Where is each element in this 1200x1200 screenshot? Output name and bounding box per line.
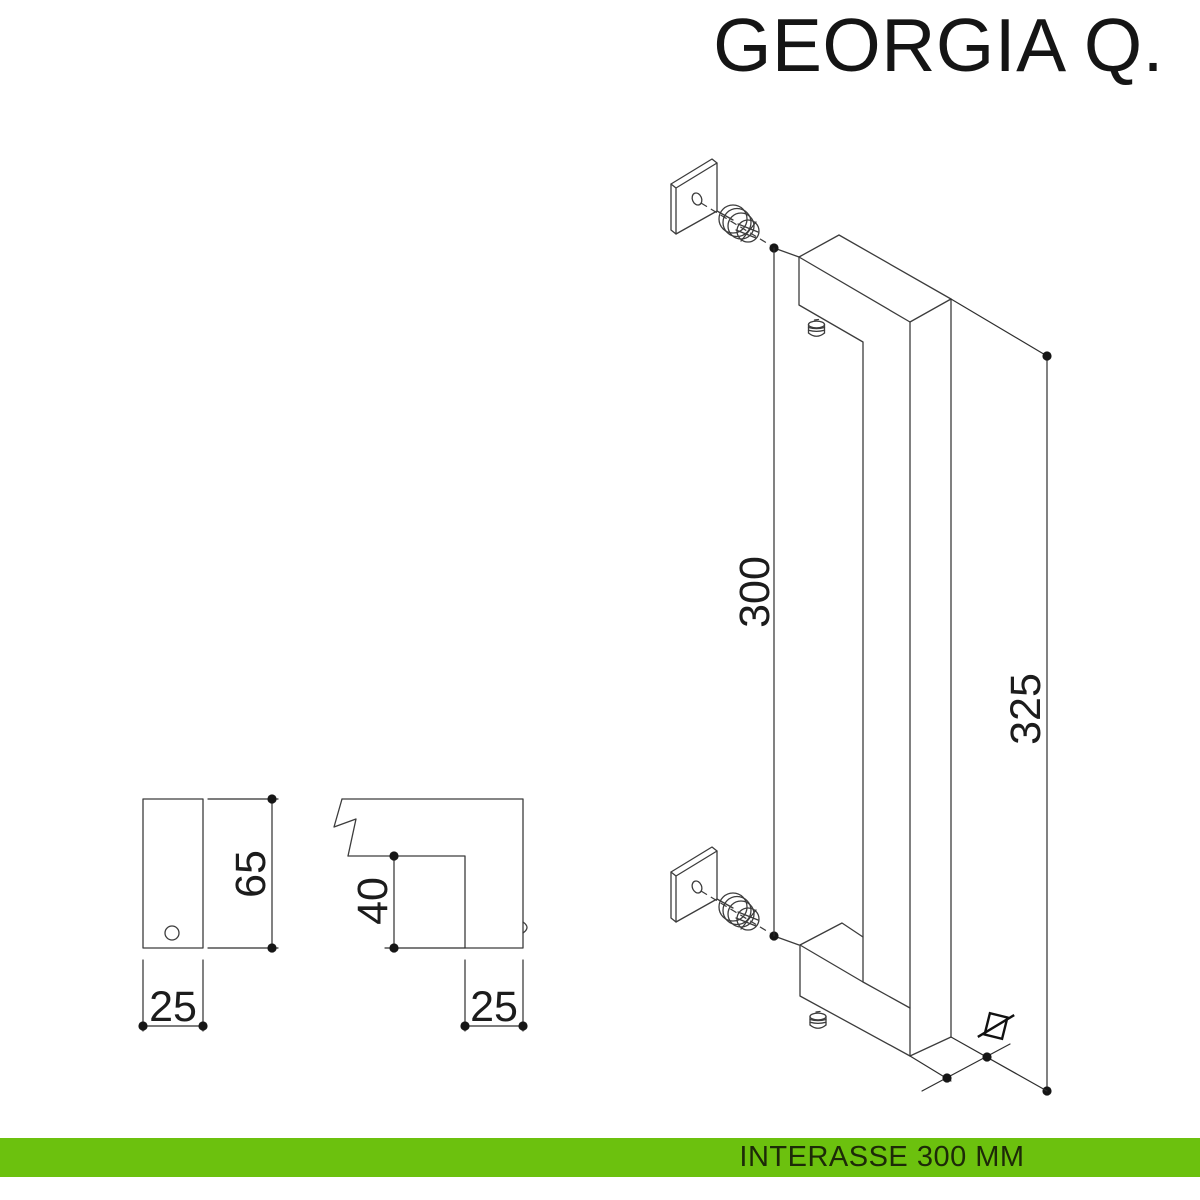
dim-plate-height-label: 65 [227, 850, 275, 898]
dim-overall: 325 [951, 299, 1052, 1096]
mounting-plate-top [671, 159, 799, 257]
grub-screw-bottom [810, 1012, 826, 1029]
handle-outline [799, 235, 951, 1056]
dim-interasse-label: 300 [731, 556, 779, 628]
footer-label: INTERASSE 300 MM [739, 1138, 1024, 1177]
detail-section-view: 40 25 [334, 799, 528, 1031]
detail-side-view: 65 25 [138, 794, 278, 1031]
fixing-hole [165, 926, 179, 940]
mounting-plate-bottom [671, 847, 799, 945]
square-section-symbol [978, 1008, 1014, 1044]
dim-square-section [910, 1008, 1047, 1091]
drawing-sheet: GEORGIA Q. [0, 0, 1200, 1200]
dim-interasse: 300 [731, 248, 779, 936]
dim-plate-width-label: 25 [149, 983, 197, 1031]
technical-drawing: 300 325 [0, 0, 1200, 1200]
dim-section-width-label: 25 [470, 983, 518, 1031]
grub-screw-top [809, 320, 825, 337]
dim-section-height-label: 40 [349, 877, 397, 925]
footer-bar: INTERASSE 300 MM [0, 1138, 1200, 1177]
dim-overall-label: 325 [1002, 673, 1050, 745]
break-line [334, 799, 356, 856]
isometric-view: 300 325 [671, 159, 1052, 1096]
